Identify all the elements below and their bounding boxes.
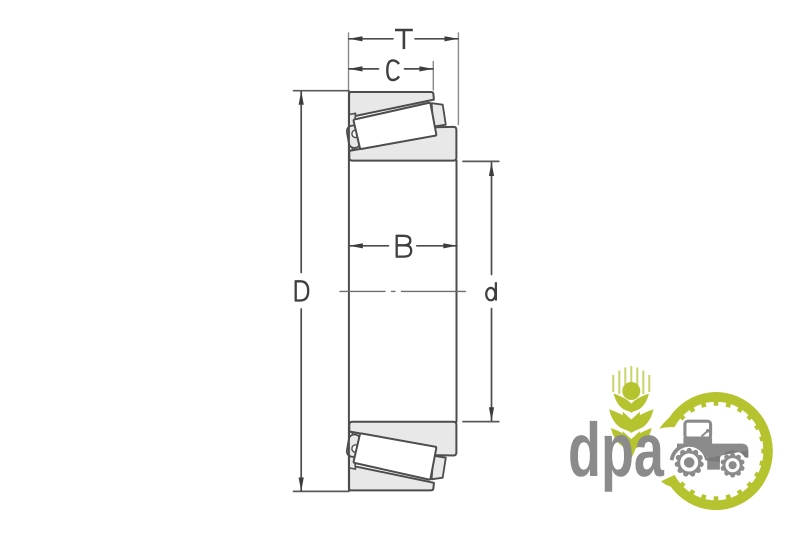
svg-text:dpa: dpa	[568, 408, 664, 493]
